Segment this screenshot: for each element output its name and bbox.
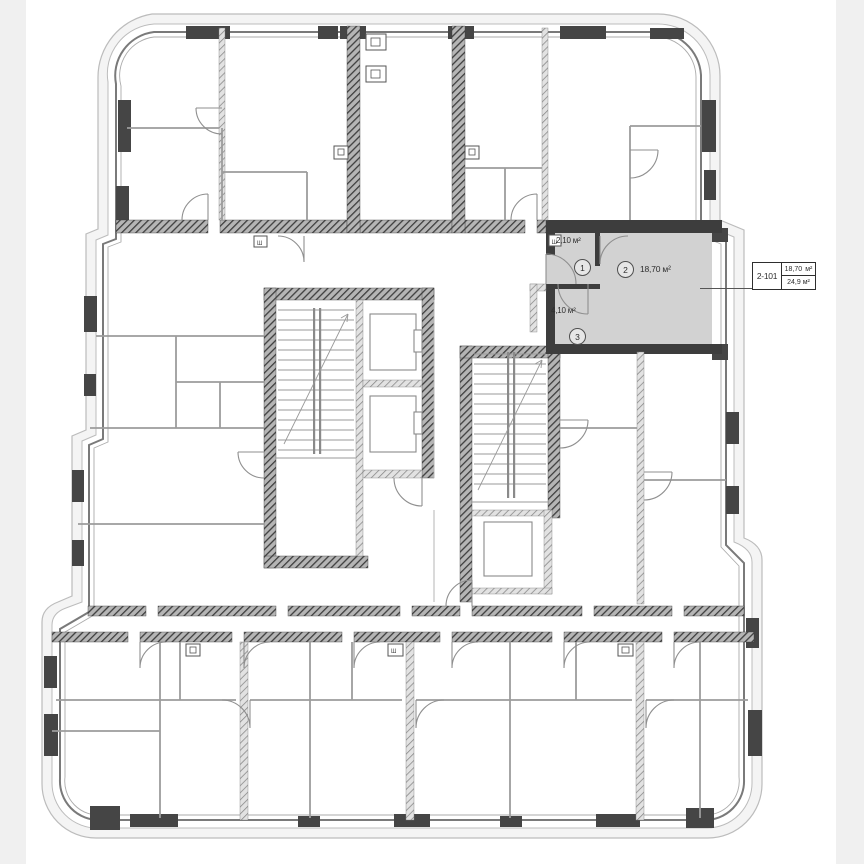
room-1-area-label: 2,10 м² — [556, 236, 581, 245]
floor-plan-canvas: Ш Ш Ш — [0, 0, 864, 864]
room-3-number-badge: 3 — [569, 328, 586, 345]
callout-unit-id: 2-101 — [753, 263, 782, 289]
callout-room-area-value: 18,70 — [785, 266, 803, 273]
shaft-symbol: Ш — [391, 649, 397, 655]
unit-callout[interactable]: 2-101 18,70 м² 24,9 м² — [752, 262, 816, 290]
room-1-number-badge: 1 — [574, 259, 591, 276]
callout-room-area: 18,70 м² — [782, 263, 815, 276]
callout-total-area: 24,9 м² — [782, 276, 815, 289]
room-2-area-label: 18,70 м² — [640, 264, 671, 274]
room-3-area-label: 4,10 м² — [551, 306, 576, 315]
shaft-symbol: Ш — [257, 241, 263, 247]
room-2-number-badge: 2 — [617, 261, 634, 278]
callout-leader-line — [700, 288, 752, 289]
floor-plan-page: Ш Ш Ш 2,10 м² 1 2 18,70 м² 4,10 м² — [0, 0, 864, 864]
callout-room-area-unit: м² — [805, 266, 812, 273]
